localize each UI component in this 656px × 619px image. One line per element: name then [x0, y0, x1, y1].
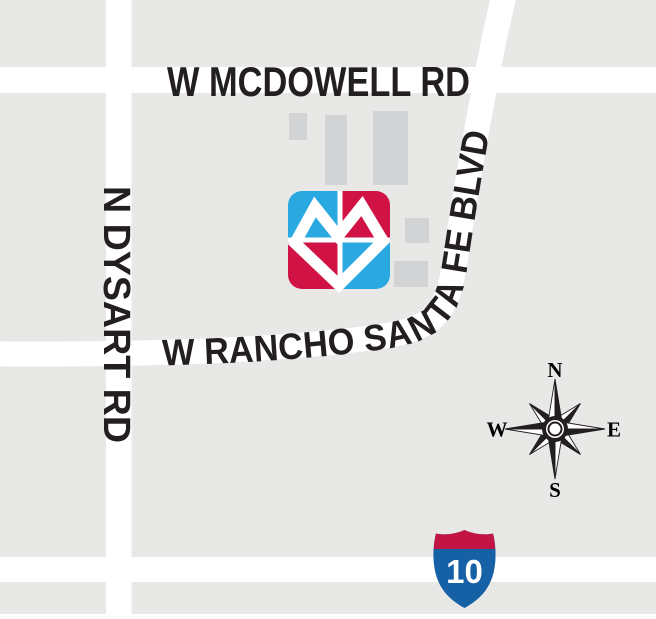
- heart-logo-icon: [288, 191, 390, 289]
- road-label-dysart: N DYSART RD: [95, 186, 137, 443]
- compass-label-south: S: [549, 478, 561, 502]
- road-interstate-10-freeway: [0, 557, 656, 582]
- building: [405, 218, 429, 243]
- building: [325, 115, 347, 185]
- building: [373, 111, 408, 185]
- road-bottom-edge: [0, 614, 656, 619]
- building: [289, 113, 307, 140]
- road-label-mcdowell: W MCDOWELL RD: [167, 58, 470, 105]
- compass-label-east: E: [607, 418, 621, 442]
- shield-route-number: 10: [446, 553, 483, 590]
- compass-label-west: W: [487, 418, 508, 442]
- compass-label-north: N: [547, 358, 562, 382]
- building: [394, 261, 428, 287]
- location-map: W MCDOWELL RD N DYSART RD W RANCHO SANTA…: [0, 0, 656, 619]
